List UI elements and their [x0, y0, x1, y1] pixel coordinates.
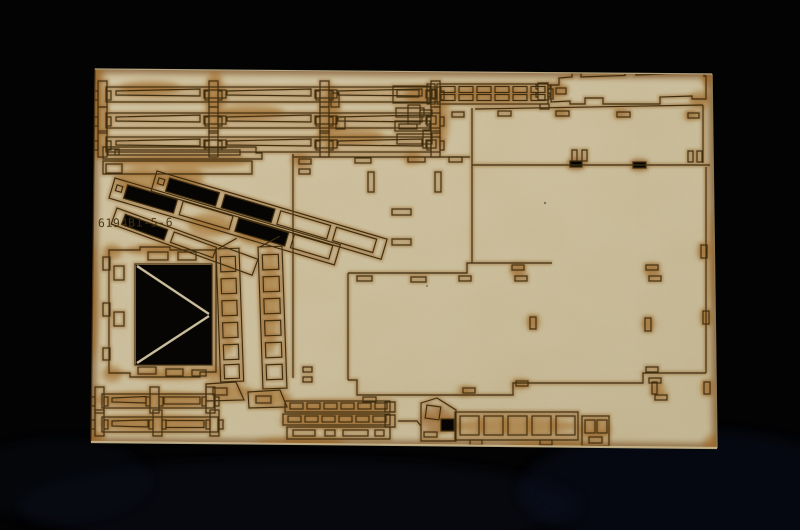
mdf-sheet: 6194B1-5-6: [85, 60, 725, 455]
laser-cut-sheet-photo: 6194B1-5-6: [0, 0, 800, 530]
etched-part-number: 6194B1-5-6: [98, 215, 173, 230]
photo-stage: 6194B1-5-6: [0, 0, 800, 530]
